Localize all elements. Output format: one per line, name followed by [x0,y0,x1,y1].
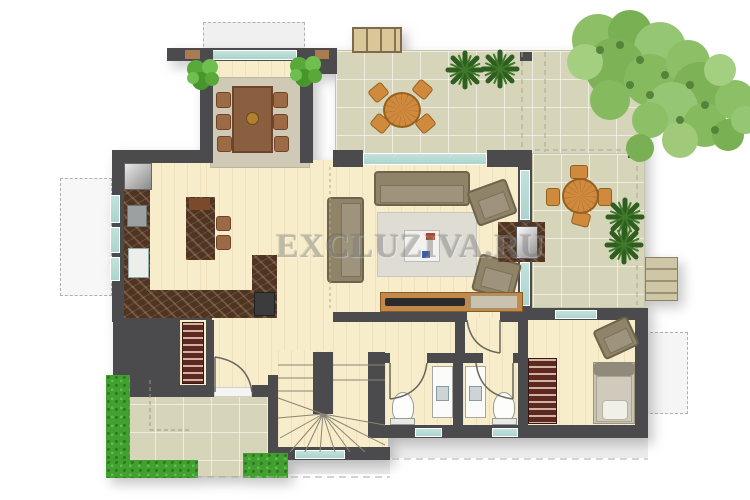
terrace-plant-1 [445,50,484,89]
tree [567,10,750,162]
door-swings [215,320,513,399]
indoor-plant-left [187,59,219,90]
indoor-plant-right [290,56,322,87]
bedroom-door-swing [467,320,500,353]
staircase-treads [278,365,385,452]
plan-overlay [0,0,750,500]
plot-boundary-dashed [195,459,648,477]
porch-canopy-dashed [150,380,192,430]
terrace-plant-2 [480,49,519,88]
wc1-door-swing [390,363,427,399]
dashed-lines [150,52,648,477]
entry-door-swing [215,357,252,392]
terrace-plant-4 [604,225,643,264]
wc2-door-swing [476,363,513,399]
floor-plan-canvas: EXCLUZIVA.RU [0,0,750,500]
